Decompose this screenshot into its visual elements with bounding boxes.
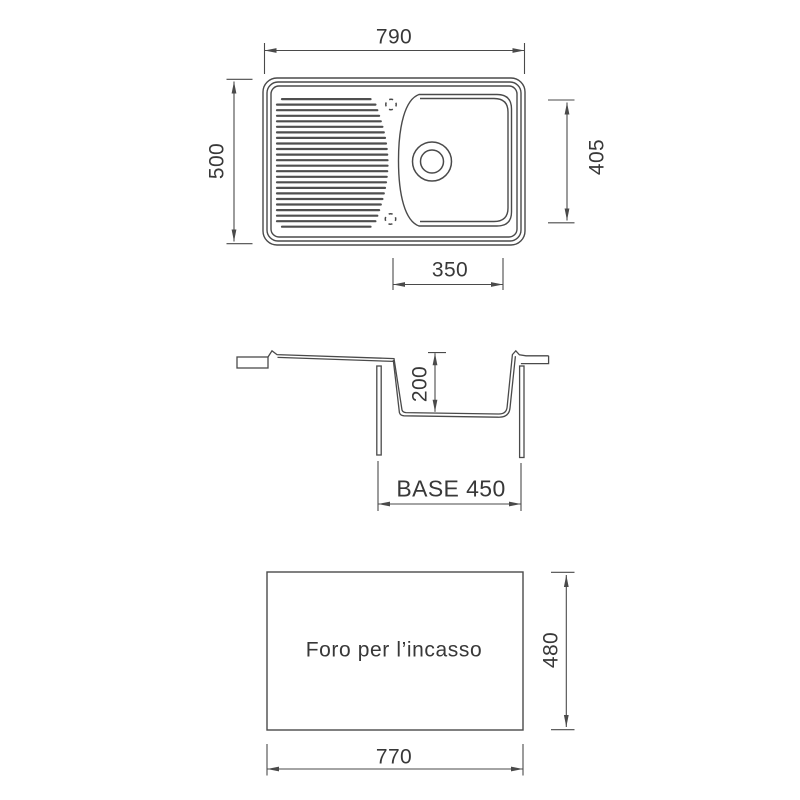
cutout-caption: Foro per l’incasso xyxy=(306,640,483,661)
tap-hole-marker-top xyxy=(386,99,396,109)
bowl-inner-lip xyxy=(420,99,508,222)
dim-label-bowl-width: 350 xyxy=(432,260,468,281)
dim-label-cutout-width: 770 xyxy=(376,747,412,768)
dim-label-overall-width: 790 xyxy=(376,27,412,48)
sink-inner-rim xyxy=(271,86,517,237)
section-view xyxy=(237,351,549,458)
dim-label-cutout-height: 480 xyxy=(541,632,562,668)
cabinet-wall-left xyxy=(377,366,381,455)
technical-drawing-page: 790 500 405 350 200 BASE 450 Foro per l’… xyxy=(0,0,800,800)
sink-outer-edge xyxy=(263,78,525,245)
bowl-outline xyxy=(399,95,512,227)
drain-inner-circle xyxy=(421,150,444,173)
drainboard-ribs xyxy=(277,99,388,227)
drain-outer-circle xyxy=(413,142,452,181)
sink-mid-edge xyxy=(267,82,521,241)
counter-edge-left xyxy=(237,357,268,368)
top-view xyxy=(263,78,525,245)
drawing-linework xyxy=(0,0,800,800)
cabinet-wall-right xyxy=(520,366,524,458)
dim-label-bowl-height: 200 xyxy=(410,366,431,402)
dim-label-bowl-depth: 405 xyxy=(587,139,608,175)
dim-label-base-width: BASE 450 xyxy=(396,478,505,501)
tap-hole-marker-bottom xyxy=(385,214,395,224)
dim-label-overall-depth: 500 xyxy=(207,143,228,179)
cutout-view-dimensions xyxy=(267,572,575,775)
